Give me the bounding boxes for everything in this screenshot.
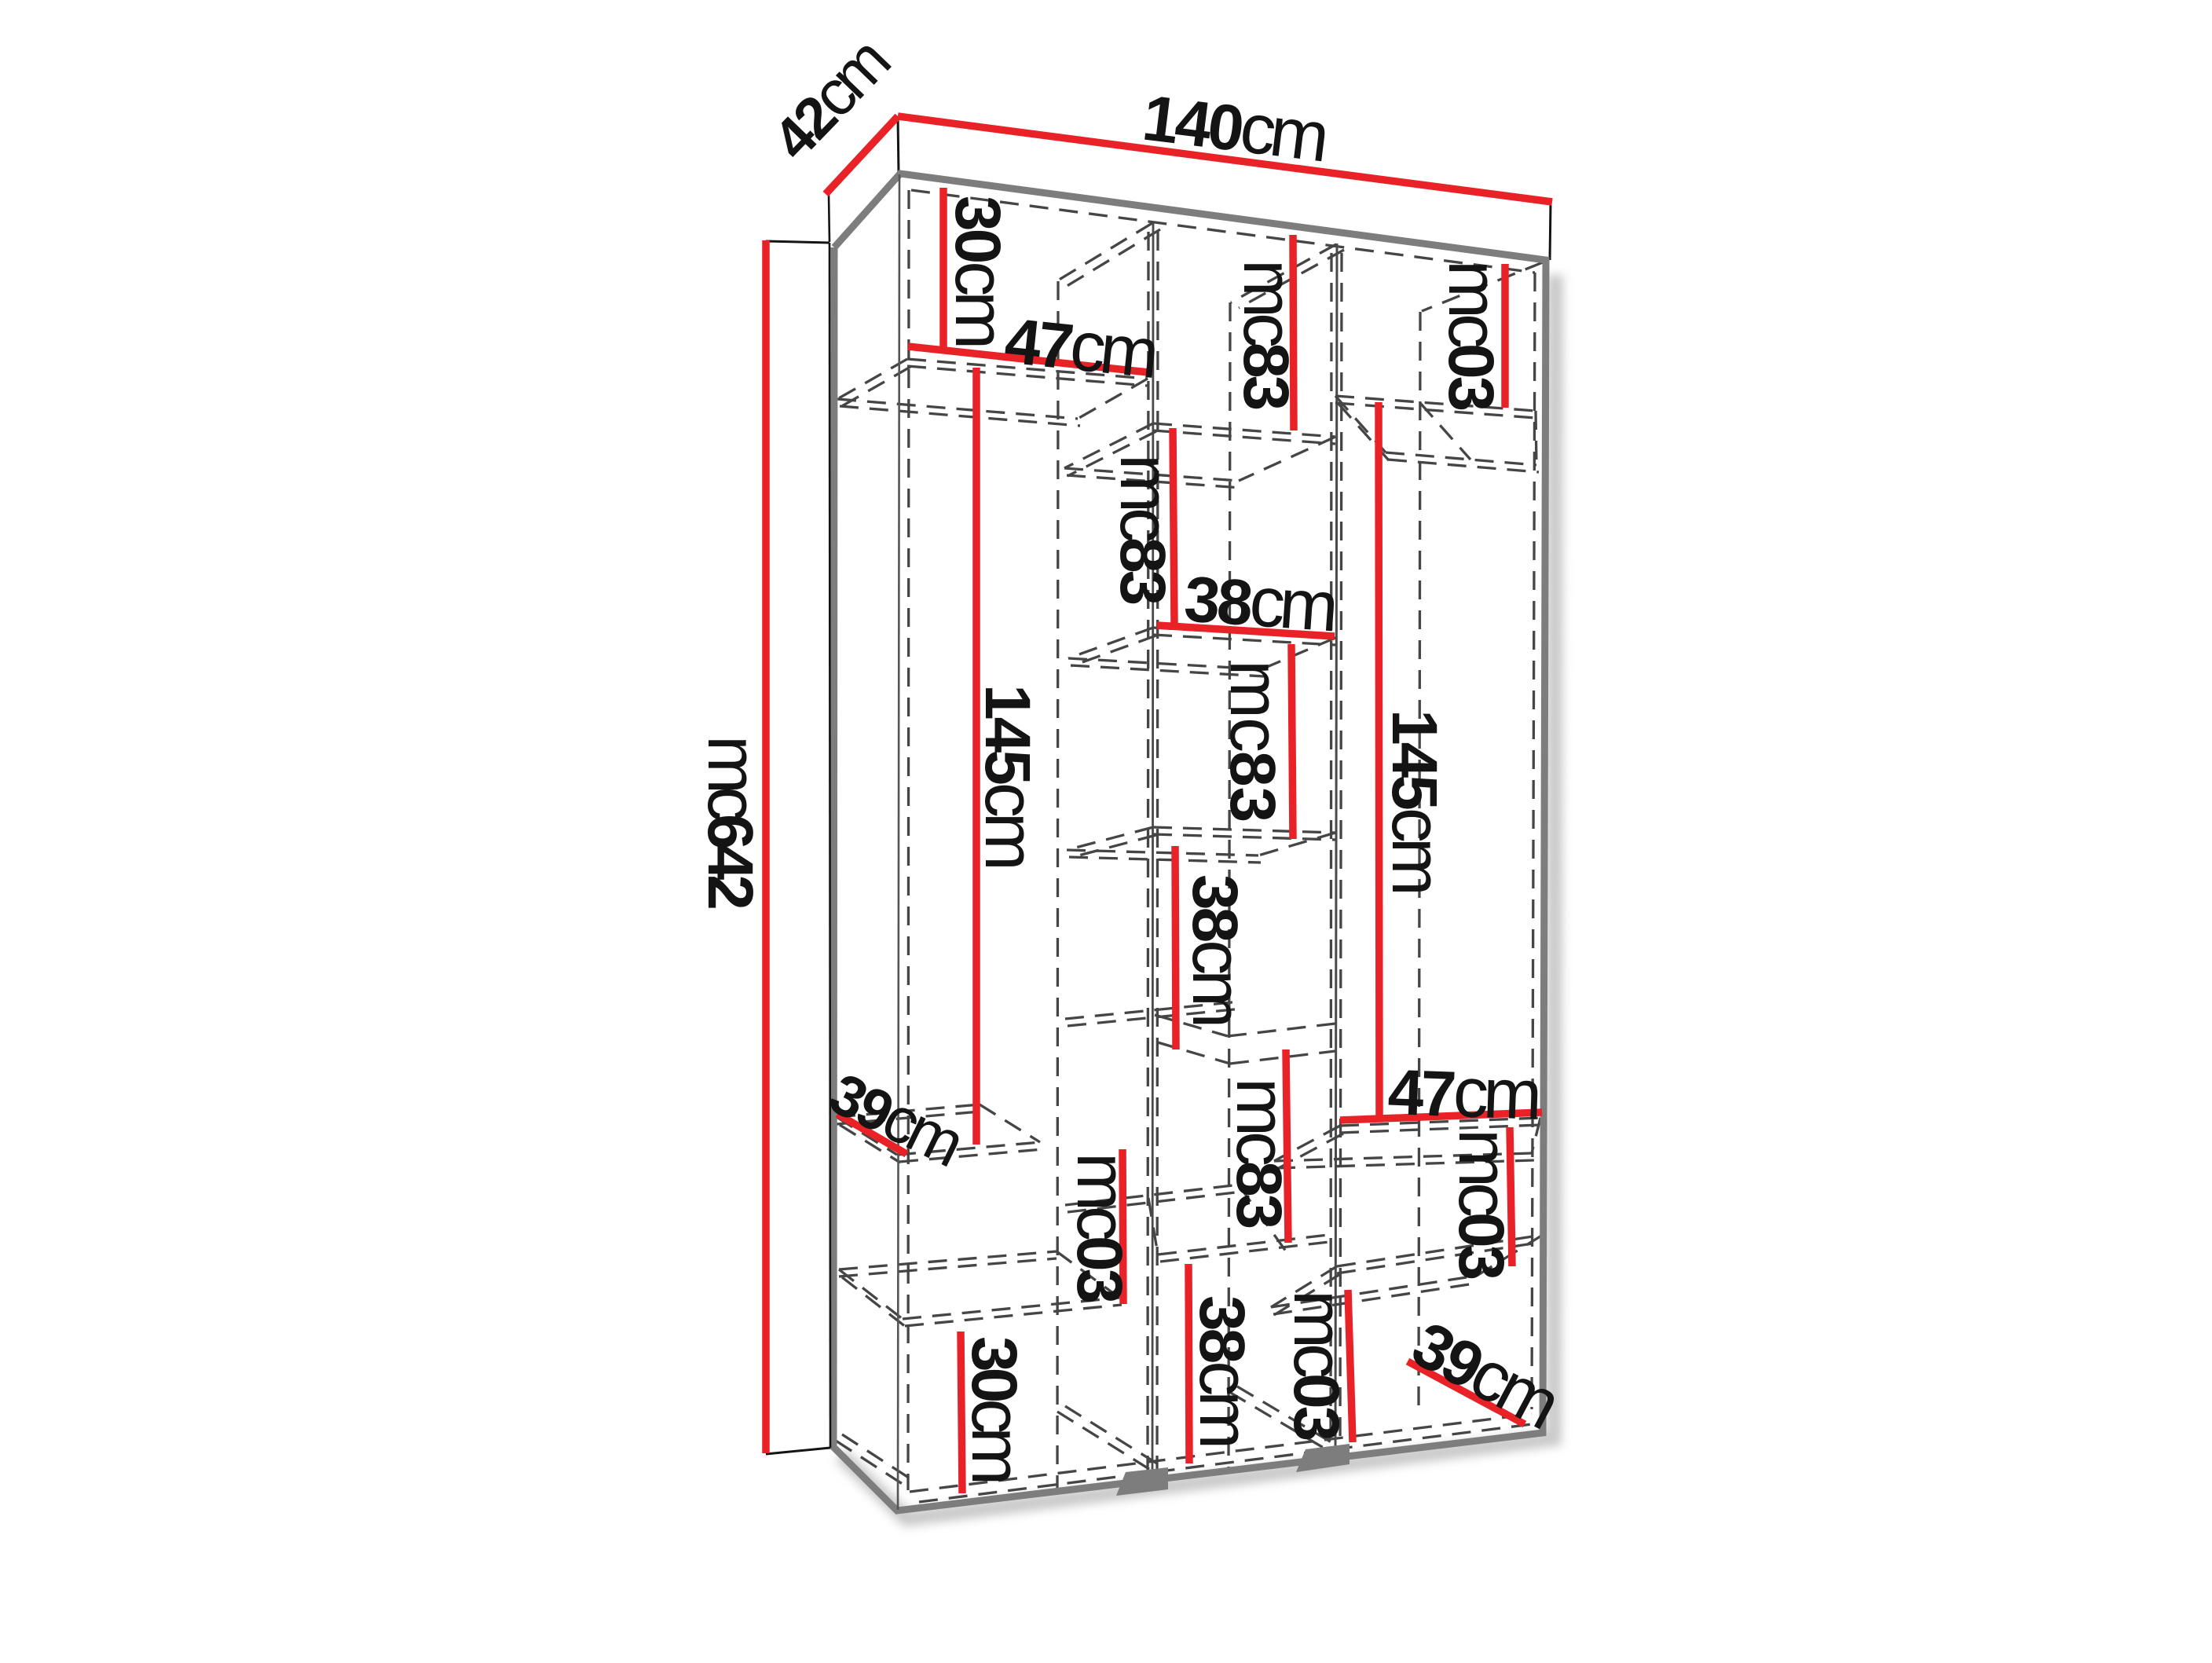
svg-text:30cm: 30cm bbox=[957, 1336, 1035, 1482]
svg-text:38cm: 38cm bbox=[1185, 1295, 1263, 1445]
svg-text:mc83: mc83 bbox=[1221, 1078, 1300, 1228]
svg-text:mc642: mc642 bbox=[693, 735, 771, 908]
svg-text:145cm: 145cm bbox=[970, 684, 1049, 867]
svg-text:mc83: mc83 bbox=[1215, 660, 1294, 822]
svg-text:mc83: mc83 bbox=[1105, 454, 1184, 604]
svg-text:mc03: mc03 bbox=[1444, 1129, 1522, 1279]
svg-text:145cm: 145cm bbox=[1377, 709, 1456, 892]
svg-text:47cm: 47cm bbox=[1386, 1051, 1540, 1135]
svg-text:mc03: mc03 bbox=[1062, 1152, 1141, 1302]
svg-text:mc03: mc03 bbox=[1434, 260, 1512, 410]
svg-text:38cm: 38cm bbox=[1177, 874, 1256, 1024]
svg-text:mc03: mc03 bbox=[1279, 1290, 1357, 1440]
svg-text:mc83: mc83 bbox=[1229, 259, 1307, 409]
svg-text:38cm: 38cm bbox=[1182, 558, 1338, 647]
